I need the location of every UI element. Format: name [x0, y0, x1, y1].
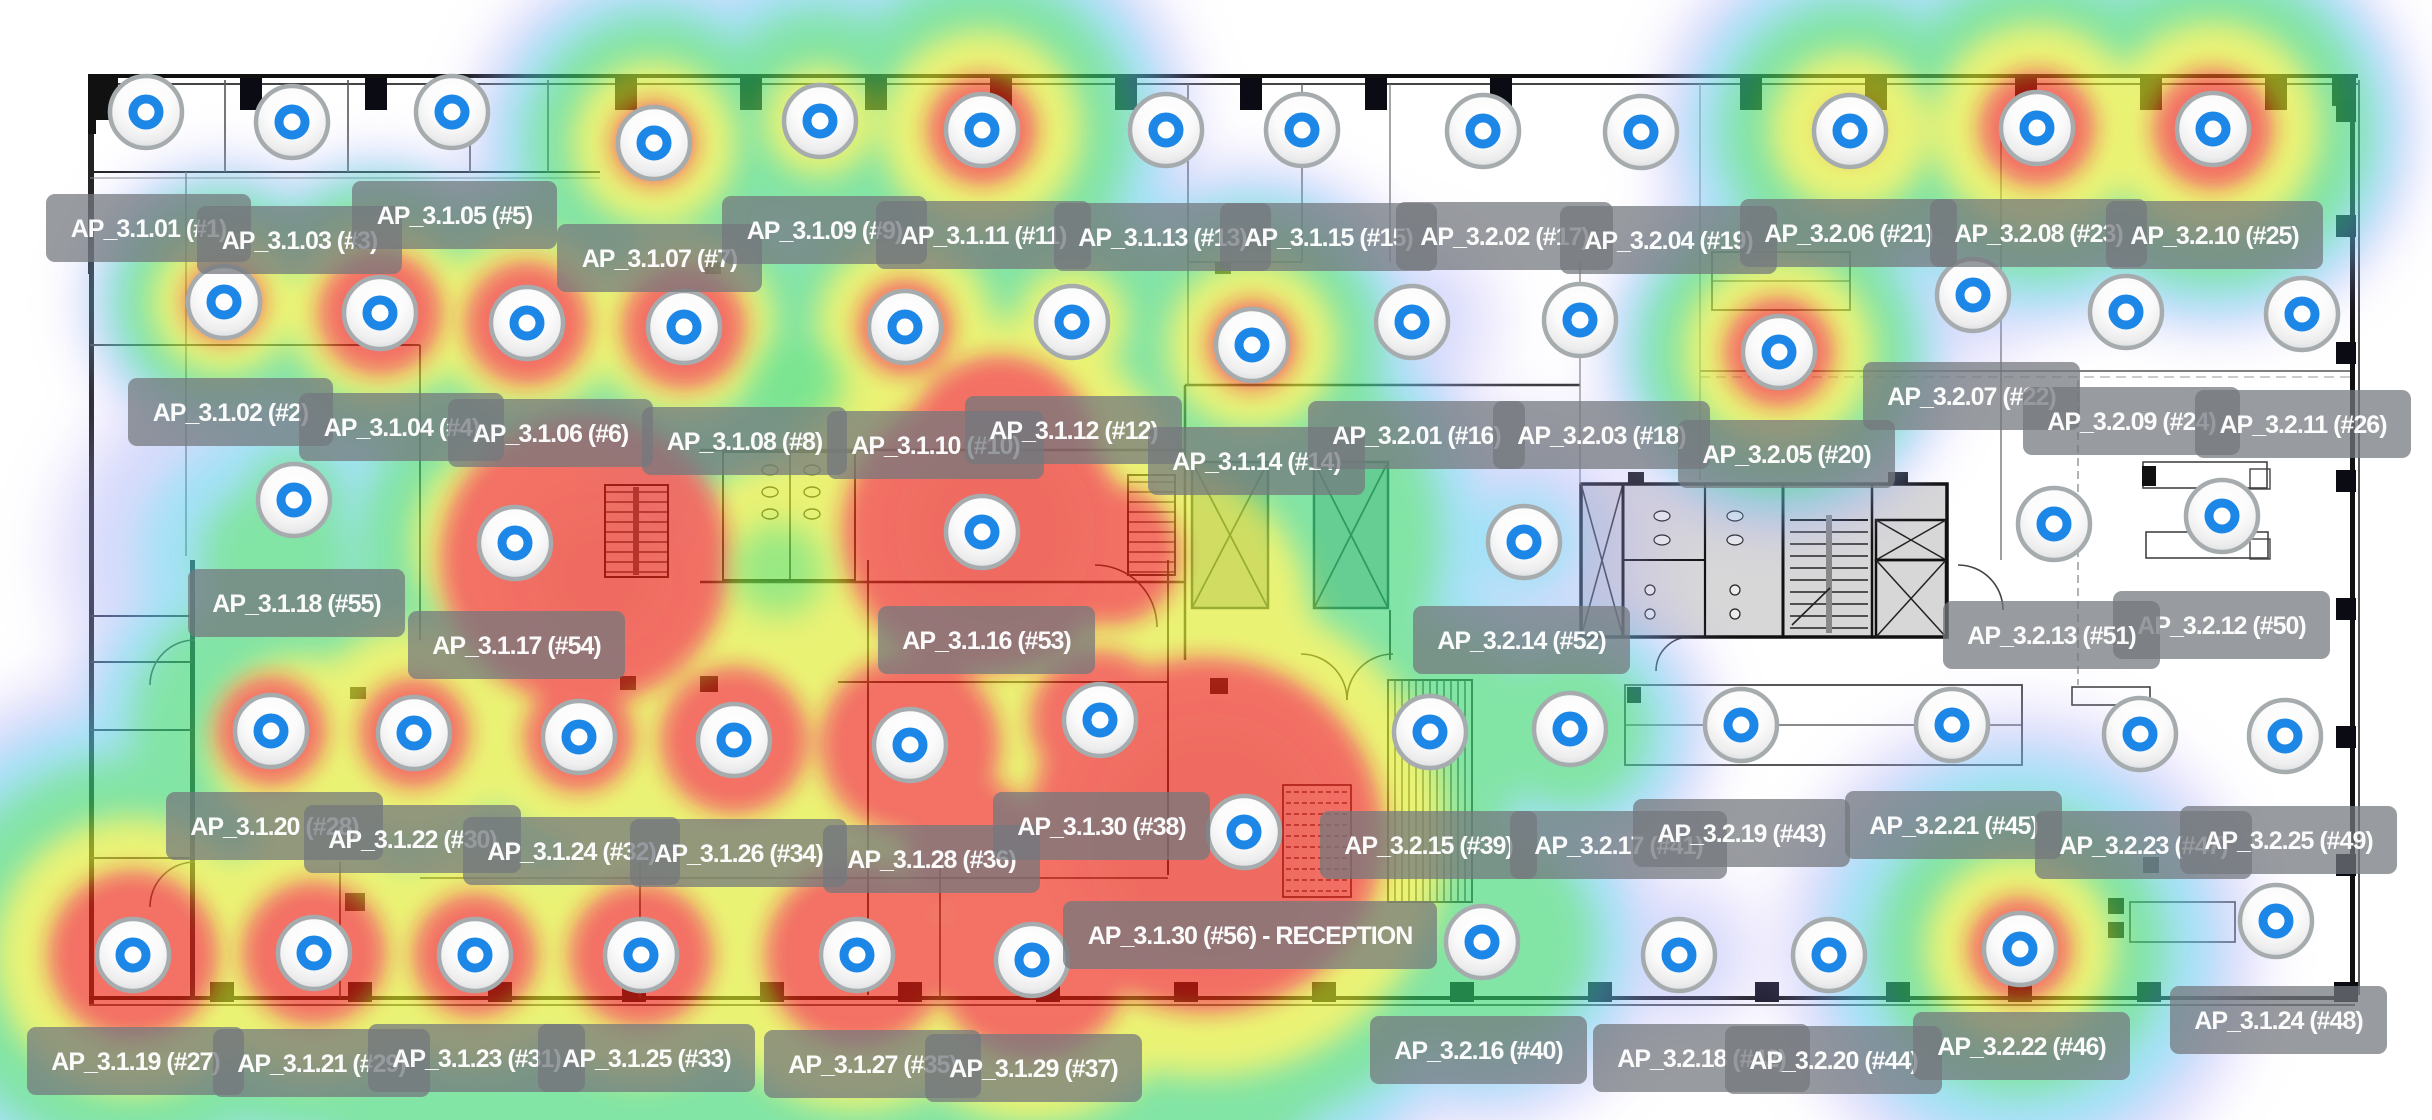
- svg-text:AP_3.2.09 (#24): AP_3.2.09 (#24): [2047, 408, 2216, 436]
- svg-text:AP_3.1.30 (#38): AP_3.1.30 (#38): [1017, 813, 1186, 841]
- svg-text:AP_3.1.23 (#31): AP_3.1.23 (#31): [392, 1045, 561, 1073]
- svg-text:AP_3.2.03 (#18): AP_3.2.03 (#18): [1517, 422, 1686, 450]
- svg-text:AP_3.1.11 (#11): AP_3.1.11 (#11): [901, 222, 1067, 250]
- svg-text:AP_3.2.11 (#26): AP_3.2.11 (#26): [2219, 411, 2387, 439]
- svg-text:AP_3.1.06 (#6): AP_3.1.06 (#6): [473, 420, 629, 448]
- svg-text:AP_3.1.24 (#48): AP_3.1.24 (#48): [2194, 1007, 2363, 1035]
- svg-text:AP_3.2.15 (#39): AP_3.2.15 (#39): [1344, 832, 1513, 860]
- svg-text:AP_3.2.06 (#21): AP_3.2.06 (#21): [1764, 220, 1933, 248]
- svg-text:AP_3.1.08 (#8): AP_3.1.08 (#8): [667, 428, 823, 456]
- svg-text:AP_3.2.22 (#46): AP_3.2.22 (#46): [1937, 1033, 2106, 1061]
- svg-text:AP_3.1.05 (#5): AP_3.1.05 (#5): [377, 202, 533, 230]
- svg-text:AP_3.1.16 (#53): AP_3.1.16 (#53): [902, 627, 1071, 655]
- svg-text:AP_3.1.25 (#33): AP_3.1.25 (#33): [562, 1045, 731, 1073]
- svg-text:AP_3.1.07 (#7): AP_3.1.07 (#7): [582, 245, 738, 273]
- svg-text:AP_3.1.29 (#37): AP_3.1.29 (#37): [949, 1055, 1118, 1083]
- svg-text:AP_3.2.05 (#20): AP_3.2.05 (#20): [1702, 441, 1871, 469]
- svg-text:AP_3.2.01 (#16): AP_3.2.01 (#16): [1332, 422, 1501, 450]
- svg-text:AP_3.2.13 (#51): AP_3.2.13 (#51): [1967, 622, 2136, 650]
- svg-text:AP_3.1.28 (#36): AP_3.1.28 (#36): [847, 846, 1016, 874]
- svg-text:AP_3.1.02 (#2): AP_3.1.02 (#2): [153, 399, 309, 427]
- svg-text:AP_3.2.25 (#49): AP_3.2.25 (#49): [2204, 827, 2373, 855]
- svg-text:AP_3.1.15 (#15): AP_3.1.15 (#15): [1244, 224, 1413, 252]
- svg-text:AP_3.2.16 (#40): AP_3.2.16 (#40): [1394, 1037, 1563, 1065]
- svg-text:AP_3.2.20 (#44): AP_3.2.20 (#44): [1749, 1047, 1918, 1075]
- svg-text:AP_3.2.14 (#52): AP_3.2.14 (#52): [1437, 627, 1606, 655]
- svg-text:AP_3.1.18 (#55): AP_3.1.18 (#55): [212, 590, 381, 618]
- svg-text:AP_3.1.19 (#27): AP_3.1.19 (#27): [51, 1048, 220, 1076]
- svg-text:AP_3.2.10 (#25): AP_3.2.10 (#25): [2130, 222, 2299, 250]
- svg-text:AP_3.2.21 (#45): AP_3.2.21 (#45): [1869, 812, 2038, 840]
- svg-text:AP_3.1.12 (#12): AP_3.1.12 (#12): [989, 417, 1158, 445]
- svg-text:AP_3.1.26 (#34): AP_3.1.26 (#34): [654, 840, 823, 868]
- svg-text:AP_3.1.30 (#56) - RECEPTION: AP_3.1.30 (#56) - RECEPTION: [1088, 922, 1413, 950]
- svg-text:AP_3.2.19 (#43): AP_3.2.19 (#43): [1657, 820, 1826, 848]
- svg-text:AP_3.2.04 (#19): AP_3.2.04 (#19): [1584, 227, 1753, 255]
- svg-text:AP_3.2.08 (#23): AP_3.2.08 (#23): [1954, 220, 2123, 248]
- svg-text:AP_3.2.12 (#50): AP_3.2.12 (#50): [2137, 612, 2306, 640]
- svg-text:AP_3.1.17 (#54): AP_3.1.17 (#54): [432, 632, 601, 660]
